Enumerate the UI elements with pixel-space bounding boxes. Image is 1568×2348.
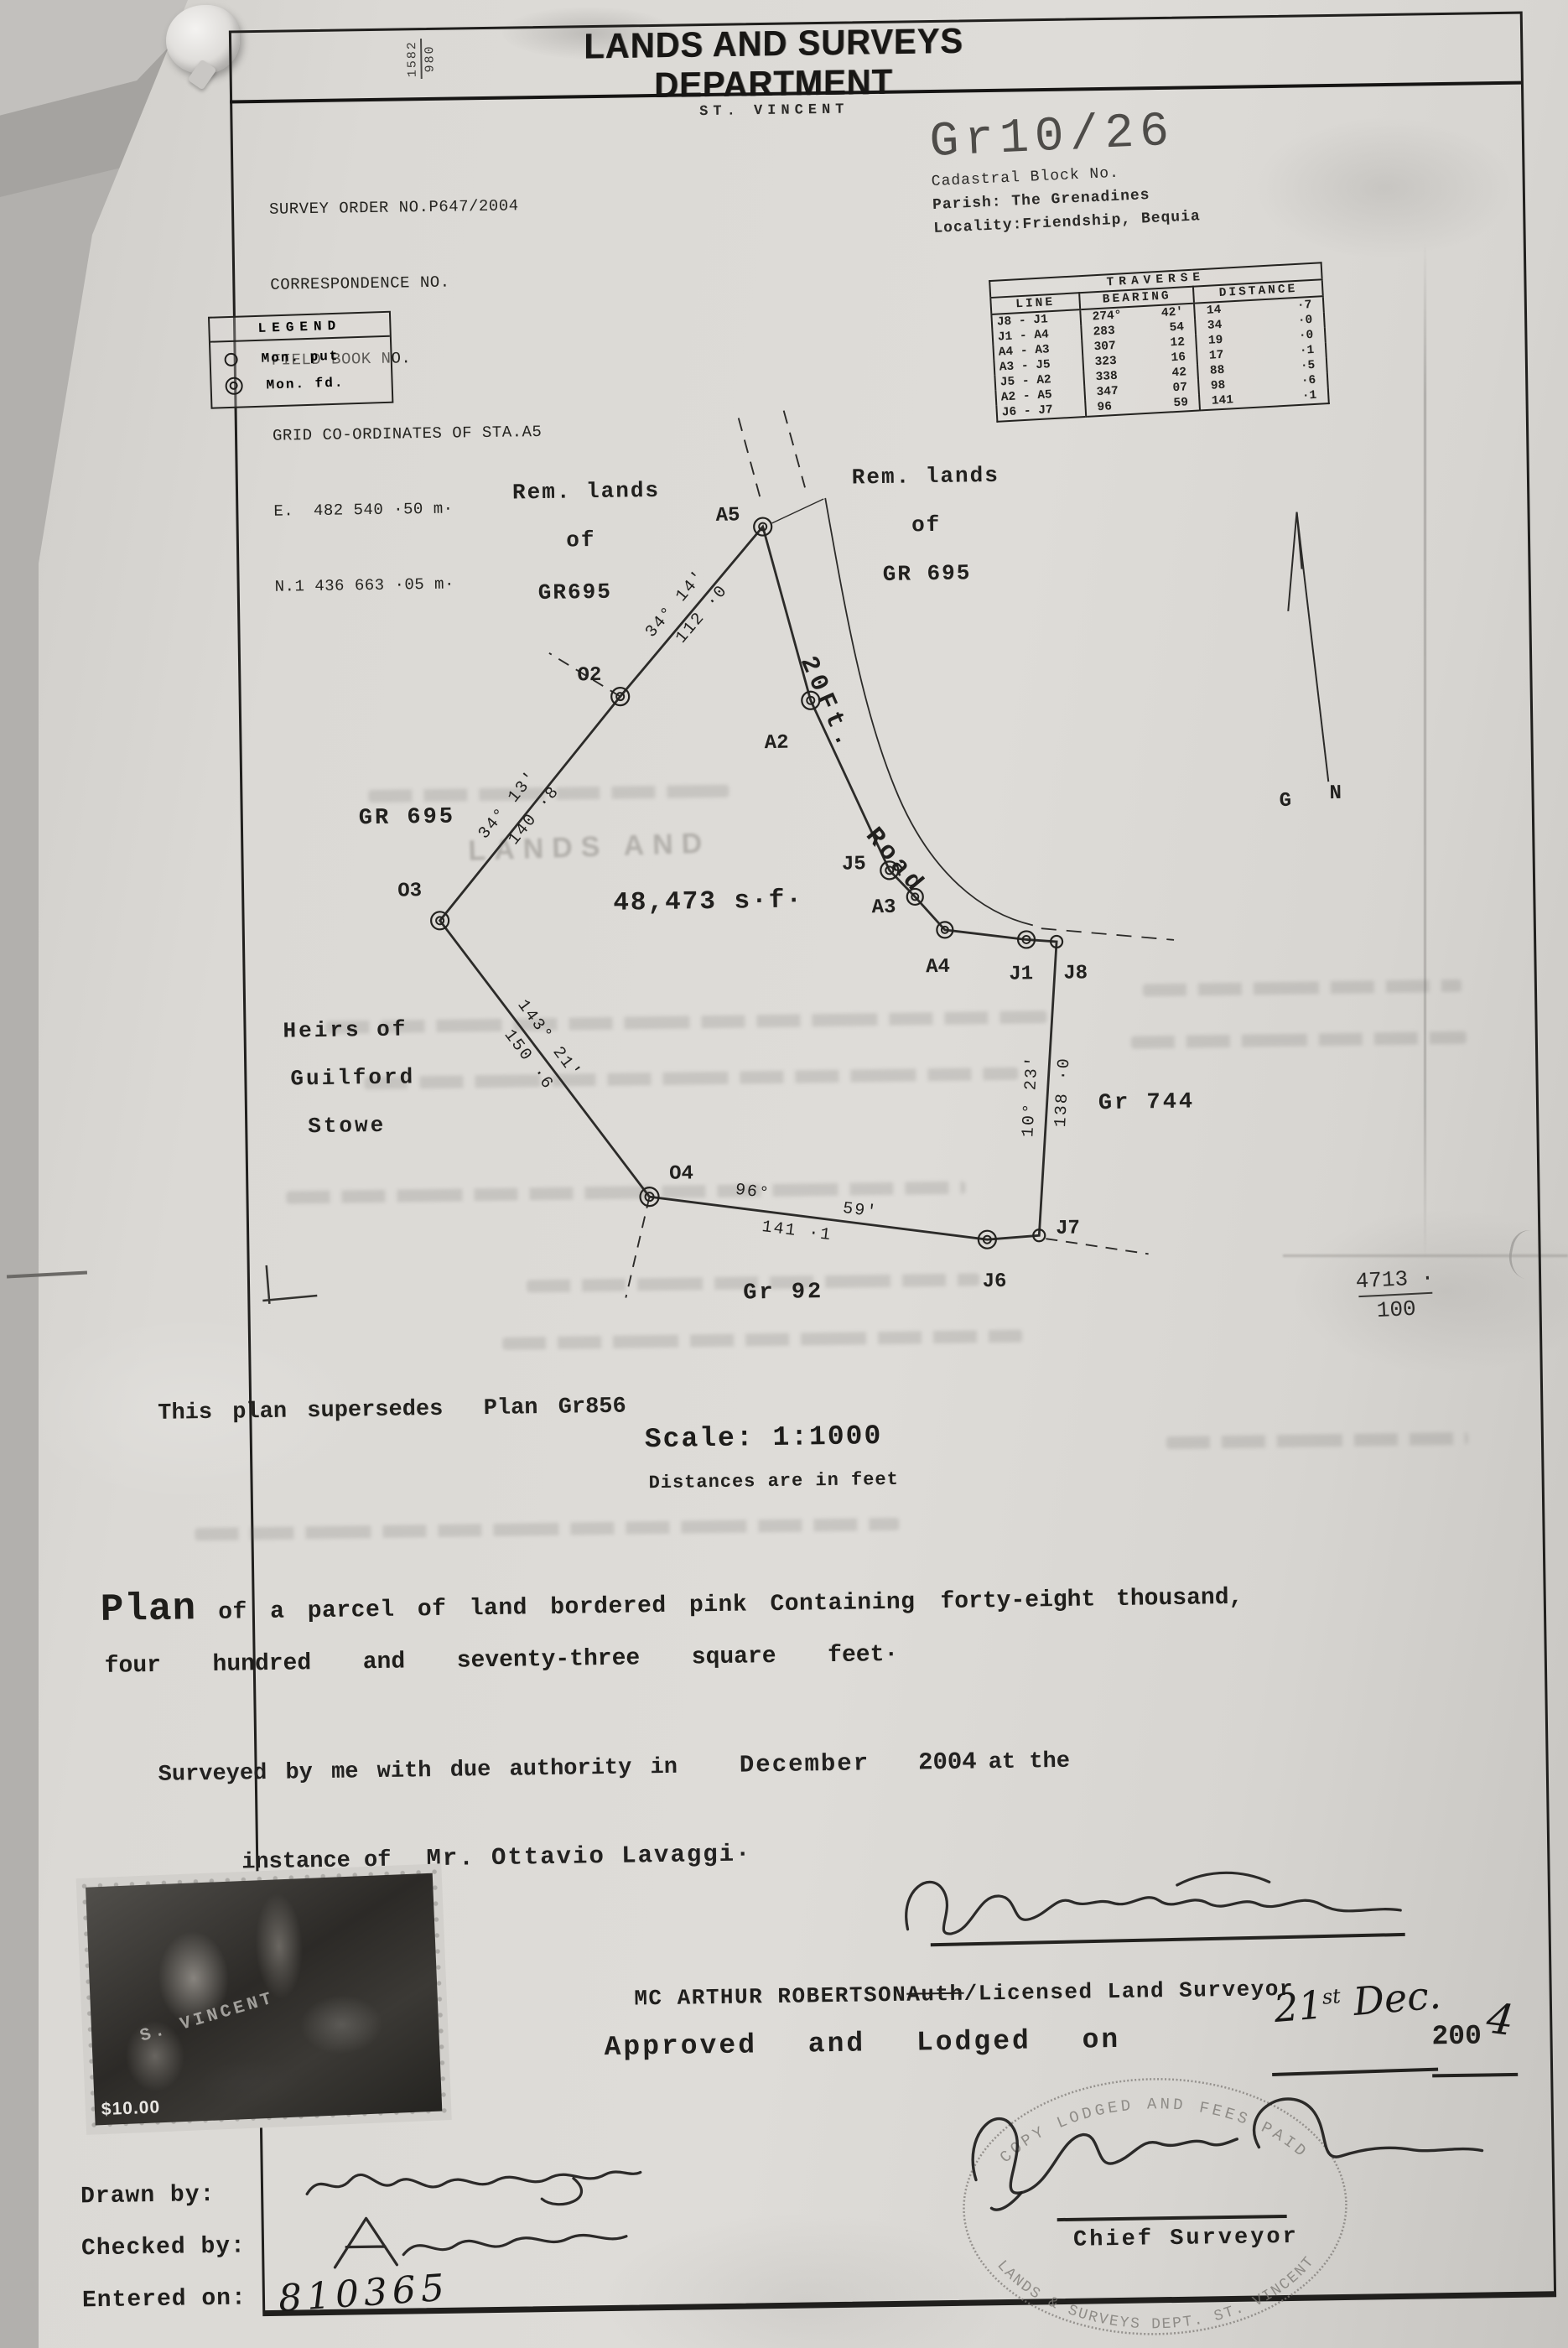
point-label-j5: J5	[842, 853, 866, 875]
road-dash-top-right	[784, 410, 805, 487]
bearing-deg: 347	[1096, 385, 1119, 399]
date-day: 21	[1272, 1982, 1325, 2031]
road-label-20ft: 20Ft.	[793, 652, 860, 756]
corner-bracket-mark	[262, 1265, 318, 1304]
bearing-value: 34° 14'	[642, 567, 710, 642]
description-amount1: forty-eight thousand,	[940, 1585, 1243, 1615]
bearing-deg: 307	[1093, 340, 1116, 354]
distance-whole: 98	[1211, 379, 1226, 393]
reference-fraction: 1582 980	[405, 20, 439, 98]
date-month: Dec.	[1339, 1971, 1442, 2025]
client-name: Mr. Ottavio Lavaggi·	[426, 1840, 752, 1873]
rem-left-line2: of	[566, 527, 596, 553]
bleed-through-artifact	[325, 1010, 1046, 1034]
bearing-min: 54	[1169, 320, 1184, 335]
road-dash-top-left	[739, 418, 760, 496]
bleed-through-artifact	[1143, 979, 1462, 997]
road-edge	[825, 495, 1033, 928]
point-label-a2: A2	[765, 732, 789, 755]
rem-left-line3: GR695	[538, 579, 612, 605]
distance-whole: 17	[1209, 349, 1224, 363]
plan-description-line1: Plan of a parcel of land bordered pink C…	[100, 1571, 1243, 1632]
chief-surveyor-signature	[949, 2073, 1504, 2216]
legend-label: Mon. put	[261, 349, 339, 366]
distance-whole: 19	[1208, 334, 1223, 348]
northing-value: N.1 436 663 ·05 m·	[274, 570, 544, 600]
stamp-value: $10.00	[101, 2097, 160, 2120]
chief-surveyor-title: Chief Surveyor	[1073, 2225, 1299, 2253]
road-edge-dashed	[1041, 927, 1174, 942]
sheet-fraction-bottom: 100	[1354, 1295, 1439, 1324]
sheet-fraction-top: 4713 ·	[1353, 1265, 1437, 1295]
bleed-through-ghost-text: LANDS AND	[468, 828, 711, 868]
distance-value: 141 ·1	[761, 1218, 833, 1245]
distance-decimal: ·0	[1298, 314, 1313, 328]
plan-border-frame: 1582 980 LANDS AND SURVEYS DEPARTMENT ST…	[229, 12, 1556, 2317]
bleed-through-artifact	[502, 1330, 1022, 1350]
distance-decimal: ·6	[1301, 374, 1316, 388]
bearing-j8-j7: 10° 23' 138 ·0	[1019, 1055, 1074, 1140]
gr695-left-label: GR 695	[359, 805, 456, 832]
point-label-j8: J8	[1063, 962, 1088, 984]
attestation-month: December	[740, 1749, 870, 1779]
scale-note: Scale: 1:1000	[645, 1421, 883, 1455]
distances-note: Distances are in feet	[648, 1469, 899, 1493]
point-label-o4: O4	[669, 1162, 693, 1185]
legend-box: LEGEND Mon. put Mon. fd.	[208, 311, 393, 409]
bearing-min: 42	[1171, 366, 1186, 380]
grid-coordinates-label: GRID CO-ORDINATES OF STA.A5	[273, 419, 543, 449]
point-label-j1: J1	[1009, 963, 1033, 985]
struck-text: Auth	[906, 1982, 964, 2008]
attestation-year: 2004	[918, 1748, 977, 1776]
checked-by-signature	[322, 2204, 650, 2280]
distance-whole: 141	[1211, 393, 1233, 408]
point-label-a4: A4	[926, 956, 950, 979]
bearing-deg: 338	[1095, 370, 1118, 384]
correspondence-no: CORRESPONDENCE NO.	[270, 268, 540, 298]
distance-whole: 88	[1210, 364, 1225, 378]
bearing-min: 07	[1172, 381, 1187, 395]
plan-word: Plan	[100, 1587, 196, 1632]
bearing-min: 59	[1173, 396, 1188, 410]
attestation-line1: Surveyed by me with due authority in Dec…	[158, 1747, 1070, 1788]
monument-found-icon	[225, 377, 243, 395]
bleed-through-artifact	[527, 1273, 979, 1292]
bearing-deg: 96	[1097, 400, 1112, 414]
easting-value: E. 482 540 ·50 m·	[273, 495, 543, 524]
legend-label: Mon. fd.	[266, 375, 344, 392]
bearing-min: 16	[1171, 351, 1186, 365]
road-label-road: Road	[859, 823, 931, 900]
entered-on-label: Entered on:	[82, 2285, 247, 2314]
distance-whole: 34	[1207, 319, 1223, 333]
bleed-through-artifact	[1131, 1031, 1467, 1049]
parcel-area-label: 48,473 s·f·	[613, 886, 803, 917]
point-label-j6: J6	[982, 1270, 1006, 1293]
monument-put-markers	[1029, 936, 1067, 1242]
bearing-deg: 323	[1094, 355, 1117, 369]
point-label-o2: O2	[577, 664, 601, 687]
handwritten-date: 21st Dec.	[1272, 1971, 1442, 2031]
distance-whole: 14	[1207, 304, 1222, 318]
handwritten-year-digit: 4	[1484, 1993, 1517, 2045]
point-label-j7: J7	[1056, 1218, 1080, 1240]
distance-decimal: ·7	[1297, 299, 1312, 313]
svg-text:LANDS & SURVEYS DEPT. ST. VINC: LANDS & SURVEYS DEPT. ST. VINCENT	[993, 2252, 1319, 2335]
point-label-a5: A5	[715, 504, 740, 527]
scanned-survey-plan-photo: 1582 980 LANDS AND SURVEYS DEPARTMENT ST…	[0, 0, 1568, 2348]
bleed-through-artifact	[368, 785, 729, 803]
header-block: LANDS AND SURVEYS DEPARTMENT ST. VINCENT	[475, 23, 1073, 124]
north-label-n: N	[1329, 782, 1342, 805]
attestation-post: at the	[989, 1749, 1071, 1775]
oval-stamp-bottom-text: LANDS & SURVEYS DEPT. ST. VINCENT	[993, 2252, 1319, 2335]
rem-right-line2: of	[911, 512, 942, 538]
gr744-label: Gr 744	[1098, 1089, 1196, 1116]
cadastral-block-ref: Gr10/26 Cadastral Block No. Parish: The …	[928, 103, 1201, 241]
survey-order-no: SURVEY ORDER NO.P647/2004	[269, 193, 539, 222]
bearing-deg: 274°	[1092, 309, 1122, 324]
checked-by-label: Checked by:	[81, 2233, 246, 2262]
bearing-value: 143° 21'	[513, 996, 585, 1083]
bearing-min: 42'	[1161, 305, 1184, 319]
stamp-overlay-text: S. VINCENT	[138, 1989, 278, 2047]
traverse-table: TRAVERSE LINE BEARING DISTANCE J8 - J1 2…	[989, 262, 1330, 423]
rem-lands-right-label: Rem. lands of GR 695	[852, 463, 1001, 588]
bleed-through-artifact	[1166, 1432, 1468, 1449]
distance-decimal: ·1	[1301, 389, 1316, 403]
bearing-minutes: 59'	[842, 1199, 880, 1223]
distance-decimal: ·0	[1299, 329, 1314, 343]
a5-road-tick	[771, 499, 823, 523]
postage-stamp: S. VINCENT $10.00	[76, 1863, 452, 2135]
surveyor-name-line: MC ARTHUR ROBERTSONAuth/Licensed Land Su…	[548, 1951, 1295, 2038]
north-label-g: G	[1279, 790, 1291, 813]
distance-decimal: ·5	[1300, 359, 1315, 373]
heirs-line3: Stowe	[308, 1113, 386, 1139]
distance-value: 138 ·0	[1051, 1057, 1075, 1128]
typed-year: 200	[1431, 2021, 1482, 2053]
bearing-value: 34° 13'	[475, 767, 542, 844]
monument-put-icon	[224, 353, 238, 367]
bleed-through-artifact	[286, 1182, 965, 1204]
o2-dash	[549, 652, 620, 698]
drawn-by-label: Drawn by:	[80, 2182, 215, 2210]
reference-fraction-bottom: 980	[423, 44, 437, 72]
bleed-through-artifact	[364, 1068, 1018, 1090]
rem-right-line1: Rem. lands	[852, 463, 999, 491]
point-label-a3: A3	[871, 896, 896, 919]
legend-item-mon-found: Mon. fd.	[211, 362, 392, 408]
bleed-through-artifact	[195, 1518, 899, 1540]
entered-on-value: 810365	[277, 2267, 450, 2321]
reference-fraction-top: 1582	[405, 40, 420, 77]
distance-value: 112 ·0	[672, 581, 733, 647]
grid-north-arrow: G N	[1275, 512, 1342, 813]
j7-dash	[1046, 1237, 1148, 1255]
bearing-value: 10° 23'	[1019, 1055, 1042, 1138]
surveyor-title: /Licensed Land Surveyor	[963, 1977, 1294, 2007]
sheet-fraction: 4713 · 100	[1353, 1265, 1439, 1325]
bearing-min: 12	[1170, 335, 1185, 350]
bearing-a5-o2: 34° 14' 112 ·0	[642, 564, 733, 658]
date-ordinal: st	[1321, 1984, 1342, 2009]
bearing-deg: 283	[1093, 325, 1115, 339]
postage-stamp-image: S. VINCENT $10.00	[86, 1873, 442, 2126]
attestation-pre: Surveyed by me with due authority in	[158, 1755, 678, 1788]
distance-decimal: ·1	[1299, 344, 1314, 358]
point-label-o3: O3	[397, 880, 422, 902]
description-body: of a parcel of land bordered pink Contai…	[218, 1590, 916, 1626]
surveyor-name: MC ARTHUR ROBERTSON	[634, 1982, 906, 2012]
rem-right-line3: GR 695	[883, 560, 972, 587]
